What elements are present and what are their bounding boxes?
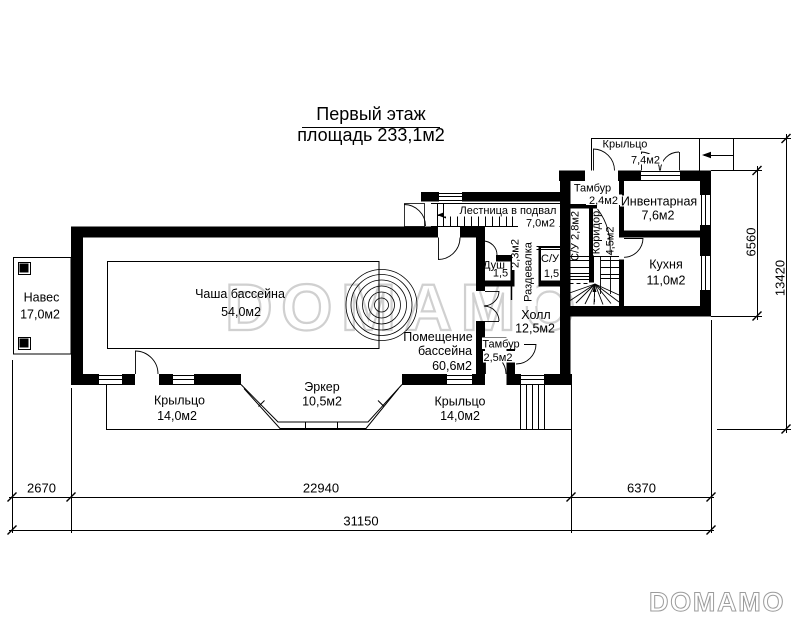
svg-text:Раздевалка: Раздевалка [523,241,535,302]
svg-text:54,0м2: 54,0м2 [221,305,261,319]
svg-text:Холл: Холл [521,308,550,322]
svg-text:6560: 6560 [744,228,759,257]
svg-text:17,0м2: 17,0м2 [20,308,60,322]
svg-text:Лестница в подвал: Лестница в подвал [460,205,557,217]
svg-text:1,5: 1,5 [544,268,559,280]
svg-text:22940: 22940 [303,481,339,496]
svg-text:14,0м2: 14,0м2 [440,409,480,423]
svg-text:Тамбур: Тамбур [574,183,611,195]
svg-text:7,4м2: 7,4м2 [631,155,660,167]
svg-text:31150: 31150 [343,514,378,529]
svg-text:Инвентарная: Инвентарная [621,195,697,209]
svg-text:6370: 6370 [627,481,656,496]
svg-text:Крыльцо: Крыльцо [603,139,648,151]
svg-text:12,5м2: 12,5м2 [515,322,555,336]
svg-text:С/У 2,8м2: С/У 2,8м2 [570,211,582,261]
svg-text:10,5м2: 10,5м2 [302,395,342,409]
svg-text:60,6м2: 60,6м2 [432,359,472,373]
svg-text:7,6м2: 7,6м2 [642,209,675,223]
svg-text:2,5м2: 2,5м2 [484,352,513,364]
svg-text:Коридор: Коридор [591,211,603,254]
svg-text:Чаша бассейна: Чаша бассейна [195,287,285,301]
svg-text:Крыльцо: Крыльцо [435,395,486,409]
svg-text:4,5м2: 4,5м2 [605,227,617,256]
svg-text:Навес: Навес [24,291,60,305]
svg-text:2,4м2: 2,4м2 [589,195,618,207]
svg-text:7,0м2: 7,0м2 [526,218,555,230]
svg-text:Крыльцо: Крыльцо [154,394,205,408]
svg-text:Помещение: Помещение [403,330,472,344]
svg-text:Первый этаж: Первый этаж [316,104,425,124]
svg-text:Кухня: Кухня [649,258,682,272]
svg-text:2,3м2: 2,3м2 [510,239,522,268]
svg-text:Тамбур: Тамбур [482,339,519,351]
svg-text:площадь 233,1м2: площадь 233,1м2 [297,125,445,145]
svg-text:1,5: 1,5 [493,268,508,280]
svg-text:Эркер: Эркер [304,380,339,394]
svg-text:бассейна: бассейна [418,344,472,358]
svg-text:С/У: С/У [541,253,560,265]
svg-text:13420: 13420 [773,260,788,296]
svg-text:14,0м2: 14,0м2 [157,409,197,423]
svg-text:11,0м2: 11,0м2 [647,274,686,288]
svg-text:2670: 2670 [27,481,56,496]
svg-text:DOMAMO: DOMAMO [649,587,785,617]
